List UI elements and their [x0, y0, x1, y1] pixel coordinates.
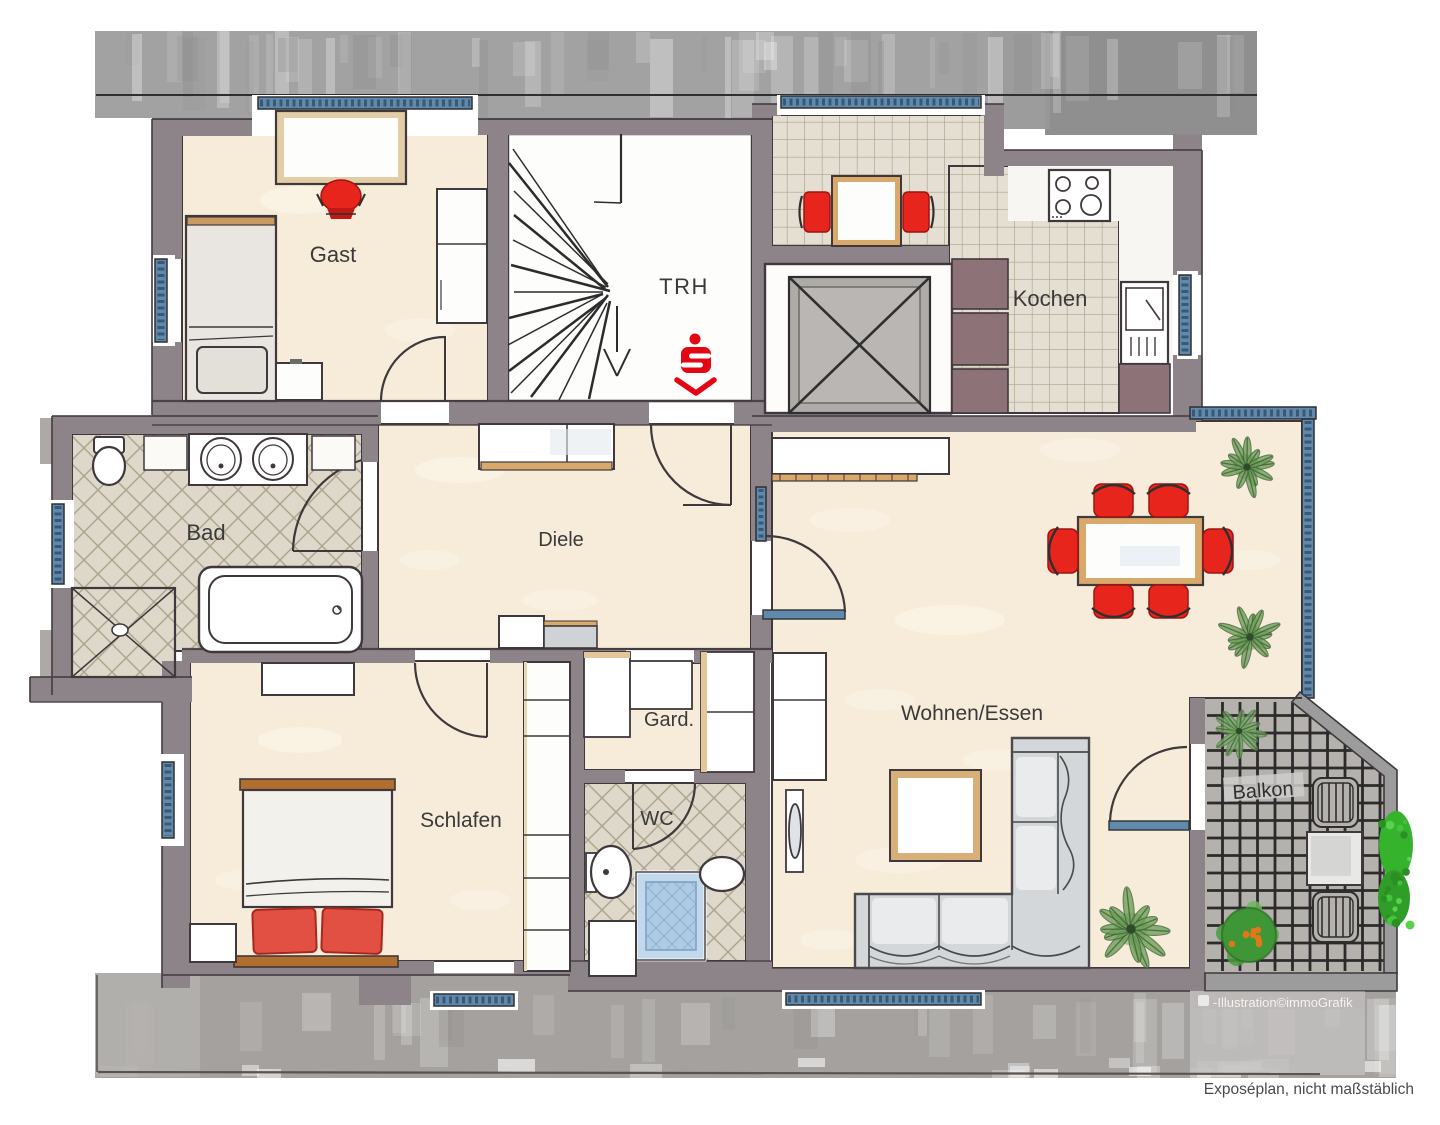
- svg-text:Schlafen: Schlafen: [420, 809, 502, 832]
- svg-text:Diele: Diele: [538, 529, 584, 551]
- svg-text:WC: WC: [640, 808, 673, 830]
- svg-text:Balkon: Balkon: [1232, 778, 1295, 804]
- svg-text:Gast: Gast: [310, 242, 356, 267]
- svg-text:Wohnen/Essen: Wohnen/Essen: [901, 702, 1043, 725]
- svg-text:-Illustration©immoGrafik: -Illustration©immoGrafik: [1213, 995, 1353, 1010]
- svg-text:Bad: Bad: [186, 520, 225, 545]
- svg-text:Exposéplan, nicht maßstäblich: Exposéplan, nicht maßstäblich: [1204, 1081, 1414, 1098]
- svg-text:Kochen: Kochen: [1013, 286, 1088, 311]
- svg-text:Gard.: Gard.: [644, 709, 694, 731]
- svg-text:TRH: TRH: [659, 274, 709, 299]
